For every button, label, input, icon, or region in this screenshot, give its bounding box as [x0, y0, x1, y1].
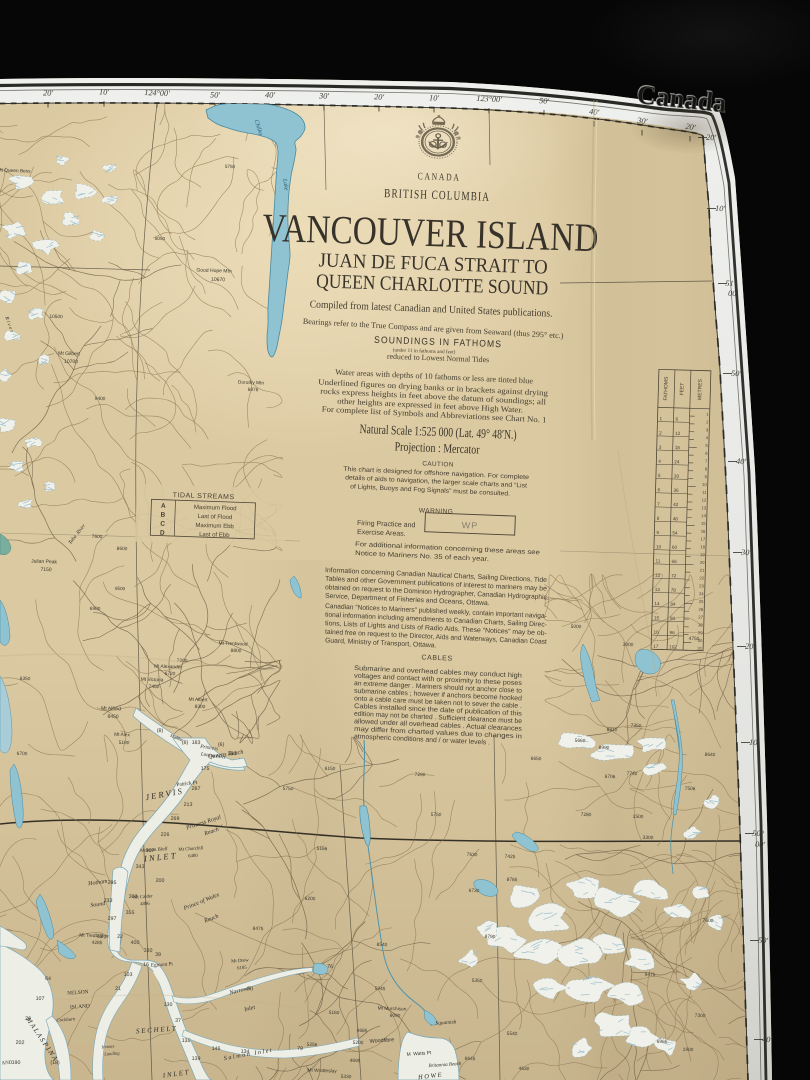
svg-text:40′: 40′	[736, 457, 747, 467]
svg-text:Mt Queen Bess: Mt Queen Bess	[0, 167, 31, 174]
svg-text:7600: 7600	[92, 534, 103, 540]
svg-text:5256: 5256	[307, 1042, 318, 1048]
svg-text:(6): (6)	[218, 742, 225, 748]
svg-text:20′: 20′	[745, 642, 756, 652]
svg-text:D: D	[160, 530, 165, 537]
svg-text:7600: 7600	[703, 918, 714, 924]
svg-text:17: 17	[653, 644, 659, 649]
svg-text:Mt Alex: Mt Alex	[114, 732, 131, 739]
svg-text:6645: 6645	[465, 1056, 476, 1062]
svg-text:42: 42	[673, 502, 679, 507]
svg-text:22: 22	[117, 934, 123, 940]
svg-text:8540: 8540	[377, 942, 388, 948]
svg-text:90: 90	[670, 616, 676, 621]
svg-text:Julian Peak: Julian Peak	[31, 559, 58, 566]
svg-text:15: 15	[701, 521, 706, 526]
svg-text:14: 14	[701, 513, 706, 518]
svg-text:10′: 10′	[749, 738, 760, 748]
svg-text:Last of Flood: Last of Flood	[197, 514, 232, 521]
svg-text:5540: 5540	[507, 1031, 518, 1037]
svg-text:27: 27	[698, 615, 703, 620]
svg-text:6480: 6480	[188, 854, 199, 860]
svg-text:8600: 8600	[117, 546, 128, 552]
svg-text:7450: 7450	[149, 684, 160, 690]
svg-text:84: 84	[670, 602, 676, 607]
svg-text:6700: 6700	[17, 751, 28, 757]
svg-text:36: 36	[673, 488, 679, 493]
svg-text:15: 15	[654, 615, 660, 620]
svg-text:8475: 8475	[253, 926, 264, 932]
svg-text:Mt Tredbridge: Mt Tredbridge	[79, 932, 109, 939]
svg-text:12: 12	[675, 431, 681, 436]
svg-text:175: 175	[201, 766, 210, 772]
svg-text:4896: 4896	[140, 902, 151, 908]
svg-text:50′: 50′	[731, 369, 742, 379]
svg-text:123°00′: 123°00′	[476, 94, 502, 104]
svg-text:Dorothy Mtn: Dorothy Mtn	[238, 380, 265, 387]
svg-text:CAUTION: CAUTION	[422, 460, 454, 468]
svg-text:213: 213	[184, 802, 193, 808]
svg-text:12: 12	[655, 573, 661, 578]
svg-text:25: 25	[699, 599, 704, 604]
svg-text:130: 130	[164, 1002, 173, 1008]
svg-text:14: 14	[654, 601, 660, 606]
svg-text:102: 102	[669, 644, 677, 649]
svg-text:295: 295	[108, 880, 117, 886]
svg-text:22: 22	[699, 575, 704, 580]
svg-text:19: 19	[700, 552, 705, 557]
svg-text:10500: 10500	[49, 314, 63, 320]
svg-text:7280: 7280	[581, 812, 592, 818]
svg-text:287: 287	[192, 786, 201, 792]
svg-text:37: 37	[175, 1018, 181, 1024]
svg-text:CABLES: CABLES	[421, 654, 453, 662]
svg-text:7630: 7630	[467, 852, 478, 858]
svg-text:10: 10	[656, 544, 662, 549]
svg-text:30′: 30′	[318, 91, 329, 100]
svg-text:3000: 3000	[623, 642, 634, 648]
svg-text:4685: 4685	[357, 1028, 368, 1034]
svg-text:202: 202	[16, 1040, 25, 1046]
svg-text:5166: 5166	[317, 846, 328, 852]
svg-text:183: 183	[192, 740, 201, 746]
svg-text:5160: 5160	[329, 1010, 340, 1016]
svg-text:20: 20	[700, 560, 705, 565]
svg-text:24: 24	[699, 591, 704, 596]
svg-text:1900: 1900	[683, 1047, 694, 1053]
svg-text:8785: 8785	[507, 877, 518, 883]
svg-text:4695: 4695	[350, 1058, 361, 1064]
svg-text:00′: 00′	[728, 289, 739, 299]
svg-text:6876: 6876	[248, 387, 259, 393]
svg-text:12: 12	[702, 498, 707, 503]
svg-text:39: 39	[155, 952, 161, 958]
svg-text:AND: AND	[1, 1061, 13, 1067]
svg-text:10′: 10′	[99, 87, 109, 96]
svg-text:11: 11	[655, 558, 660, 563]
svg-text:226: 226	[161, 832, 170, 838]
svg-text:269: 269	[171, 816, 180, 822]
svg-text:139: 139	[192, 1056, 201, 1062]
svg-text:(8): (8)	[182, 740, 189, 746]
svg-text:78: 78	[671, 587, 677, 592]
svg-text:8790: 8790	[485, 934, 496, 940]
svg-text:Mt Wrotteslay: Mt Wrotteslay	[307, 1067, 337, 1074]
svg-text:8640: 8640	[705, 752, 716, 758]
svg-text:64: 64	[45, 976, 51, 982]
svg-text:Mt Murchison: Mt Murchison	[378, 1005, 407, 1012]
svg-text:4285: 4285	[92, 940, 103, 946]
svg-text:1500: 1500	[633, 814, 644, 820]
svg-text:40′: 40′	[762, 1035, 773, 1045]
svg-text:6090: 6090	[390, 1013, 401, 1019]
svg-text:3300: 3300	[643, 835, 654, 841]
svg-text:66: 66	[671, 559, 677, 564]
svg-text:7300: 7300	[695, 1013, 706, 1019]
svg-text:50°: 50°	[752, 829, 765, 839]
svg-text:9500: 9500	[115, 586, 126, 591]
svg-text:Irvines: Irvines	[100, 1044, 114, 1050]
svg-text:330: 330	[144, 948, 153, 954]
svg-text:13: 13	[701, 505, 706, 510]
svg-text:7425: 7425	[505, 854, 516, 860]
svg-text:Last of Ebb: Last of Ebb	[199, 532, 230, 539]
svg-text:6650: 6650	[531, 756, 542, 762]
svg-text:5750: 5750	[225, 164, 236, 169]
svg-text:WARNING: WARNING	[419, 507, 454, 515]
svg-text:7150: 7150	[40, 567, 52, 573]
svg-text:54: 54	[672, 530, 678, 535]
svg-text:40′: 40′	[265, 90, 275, 99]
svg-text:96: 96	[670, 630, 676, 635]
svg-text:00′: 00′	[755, 840, 766, 850]
svg-text:4630: 4630	[519, 1066, 530, 1072]
svg-text:79: 79	[297, 1046, 303, 1052]
svg-text:72: 72	[671, 573, 677, 578]
svg-text:A: A	[161, 503, 166, 510]
svg-text:5000: 5000	[571, 624, 582, 630]
svg-text:6350: 6350	[20, 676, 31, 682]
svg-text:5660: 5660	[575, 738, 586, 744]
svg-text:355: 355	[126, 910, 135, 916]
svg-text:200: 200	[156, 878, 165, 884]
svg-text:9400: 9400	[95, 396, 106, 402]
svg-text:(8): (8)	[157, 728, 164, 734]
svg-text:50′: 50′	[539, 96, 550, 106]
svg-text:FEET: FEET	[679, 383, 685, 396]
svg-text:5750: 5750	[283, 786, 294, 792]
svg-text:5750: 5750	[431, 812, 442, 818]
svg-text:26: 26	[698, 607, 703, 612]
svg-text:C: C	[160, 521, 165, 528]
svg-text:16: 16	[143, 962, 149, 968]
svg-text:24: 24	[674, 459, 680, 464]
svg-text:343: 343	[136, 864, 145, 870]
svg-text:10′: 10′	[429, 93, 440, 103]
svg-text:10: 10	[702, 482, 707, 487]
svg-text:7740: 7740	[627, 771, 638, 777]
svg-text:METRES: METRES	[697, 378, 704, 400]
svg-text:5200: 5200	[353, 1040, 364, 1046]
svg-text:Mt Alfred: Mt Alfred	[101, 706, 121, 713]
svg-text:13: 13	[655, 587, 661, 592]
svg-text:48: 48	[673, 516, 679, 521]
svg-text:21: 21	[115, 986, 121, 992]
svg-text:16: 16	[701, 529, 706, 534]
svg-text:Mt Trentwood: Mt Trentwood	[218, 640, 248, 647]
svg-text:20′: 20′	[374, 92, 385, 102]
svg-text:5330: 5330	[341, 1074, 352, 1080]
svg-text:Mt Alexander: Mt Alexander	[154, 664, 183, 671]
svg-text:5945: 5945	[375, 986, 386, 992]
svg-text:8300: 8300	[195, 704, 206, 710]
svg-text:7290: 7290	[415, 772, 426, 778]
svg-text:30: 30	[698, 638, 703, 643]
svg-text:B: B	[160, 512, 165, 519]
svg-text:17: 17	[700, 536, 705, 541]
svg-text:146: 146	[212, 1046, 221, 1052]
svg-text:9475: 9475	[645, 972, 656, 978]
svg-text:Good Hope Mtn: Good Hope Mtn	[196, 267, 232, 274]
svg-text:8810: 8810	[607, 727, 618, 733]
svg-text:6730: 6730	[469, 888, 480, 894]
svg-text:8800: 8800	[231, 648, 242, 654]
svg-text:10′: 10′	[715, 204, 726, 214]
svg-text:5190: 5190	[119, 740, 130, 746]
svg-text:135: 135	[182, 1038, 191, 1044]
svg-text:50′: 50′	[758, 936, 769, 946]
svg-text:18: 18	[675, 445, 681, 450]
svg-text:21: 21	[700, 568, 705, 573]
svg-text:190: 190	[12, 1060, 21, 1066]
svg-text:124°00′: 124°00′	[144, 88, 170, 98]
svg-text:8450: 8450	[107, 714, 119, 720]
svg-text:16: 16	[654, 630, 660, 635]
svg-text:CANADA: CANADA	[417, 171, 460, 183]
svg-text:Mt Albert: Mt Albert	[188, 697, 208, 704]
svg-text:Mt Gilbert: Mt Gilbert	[58, 351, 80, 358]
svg-text:6706: 6706	[605, 774, 616, 780]
svg-text:7506: 7506	[685, 786, 696, 792]
svg-text:30: 30	[674, 474, 680, 479]
svg-text:50′: 50′	[210, 90, 220, 99]
svg-text:400: 400	[131, 940, 140, 946]
svg-text:51°: 51°	[725, 279, 738, 289]
svg-text:29: 29	[698, 630, 703, 635]
svg-text:103: 103	[124, 972, 133, 978]
svg-text:7350: 7350	[631, 723, 642, 729]
svg-text:31: 31	[697, 646, 702, 651]
svg-text:8990: 8990	[599, 745, 610, 751]
svg-text:18: 18	[700, 544, 705, 549]
svg-text:Mt Victoria: Mt Victoria	[141, 677, 164, 684]
svg-text:23: 23	[699, 583, 704, 588]
svg-text:8050: 8050	[155, 236, 166, 241]
svg-text:20′: 20′	[43, 88, 53, 97]
svg-text:WP: WP	[462, 520, 479, 531]
svg-text:28: 28	[698, 622, 703, 627]
svg-text:6720: 6720	[165, 671, 176, 677]
svg-text:6185: 6185	[237, 966, 248, 972]
svg-text:76: 76	[327, 964, 333, 970]
svg-text:6900: 6900	[90, 606, 101, 612]
svg-text:6200: 6200	[305, 896, 316, 902]
svg-text:5350: 5350	[472, 978, 483, 984]
svg-text:6150: 6150	[325, 766, 336, 772]
svg-text:10700: 10700	[64, 359, 78, 365]
svg-text:6965: 6965	[657, 1039, 668, 1045]
svg-text:H O W E: H O W E	[417, 1072, 442, 1080]
svg-text:FATHOMS: FATHOMS	[663, 376, 670, 401]
svg-text:297: 297	[108, 916, 117, 922]
svg-text:107: 107	[36, 996, 45, 1002]
svg-text:60: 60	[672, 545, 678, 550]
svg-text:10670: 10670	[211, 277, 225, 283]
